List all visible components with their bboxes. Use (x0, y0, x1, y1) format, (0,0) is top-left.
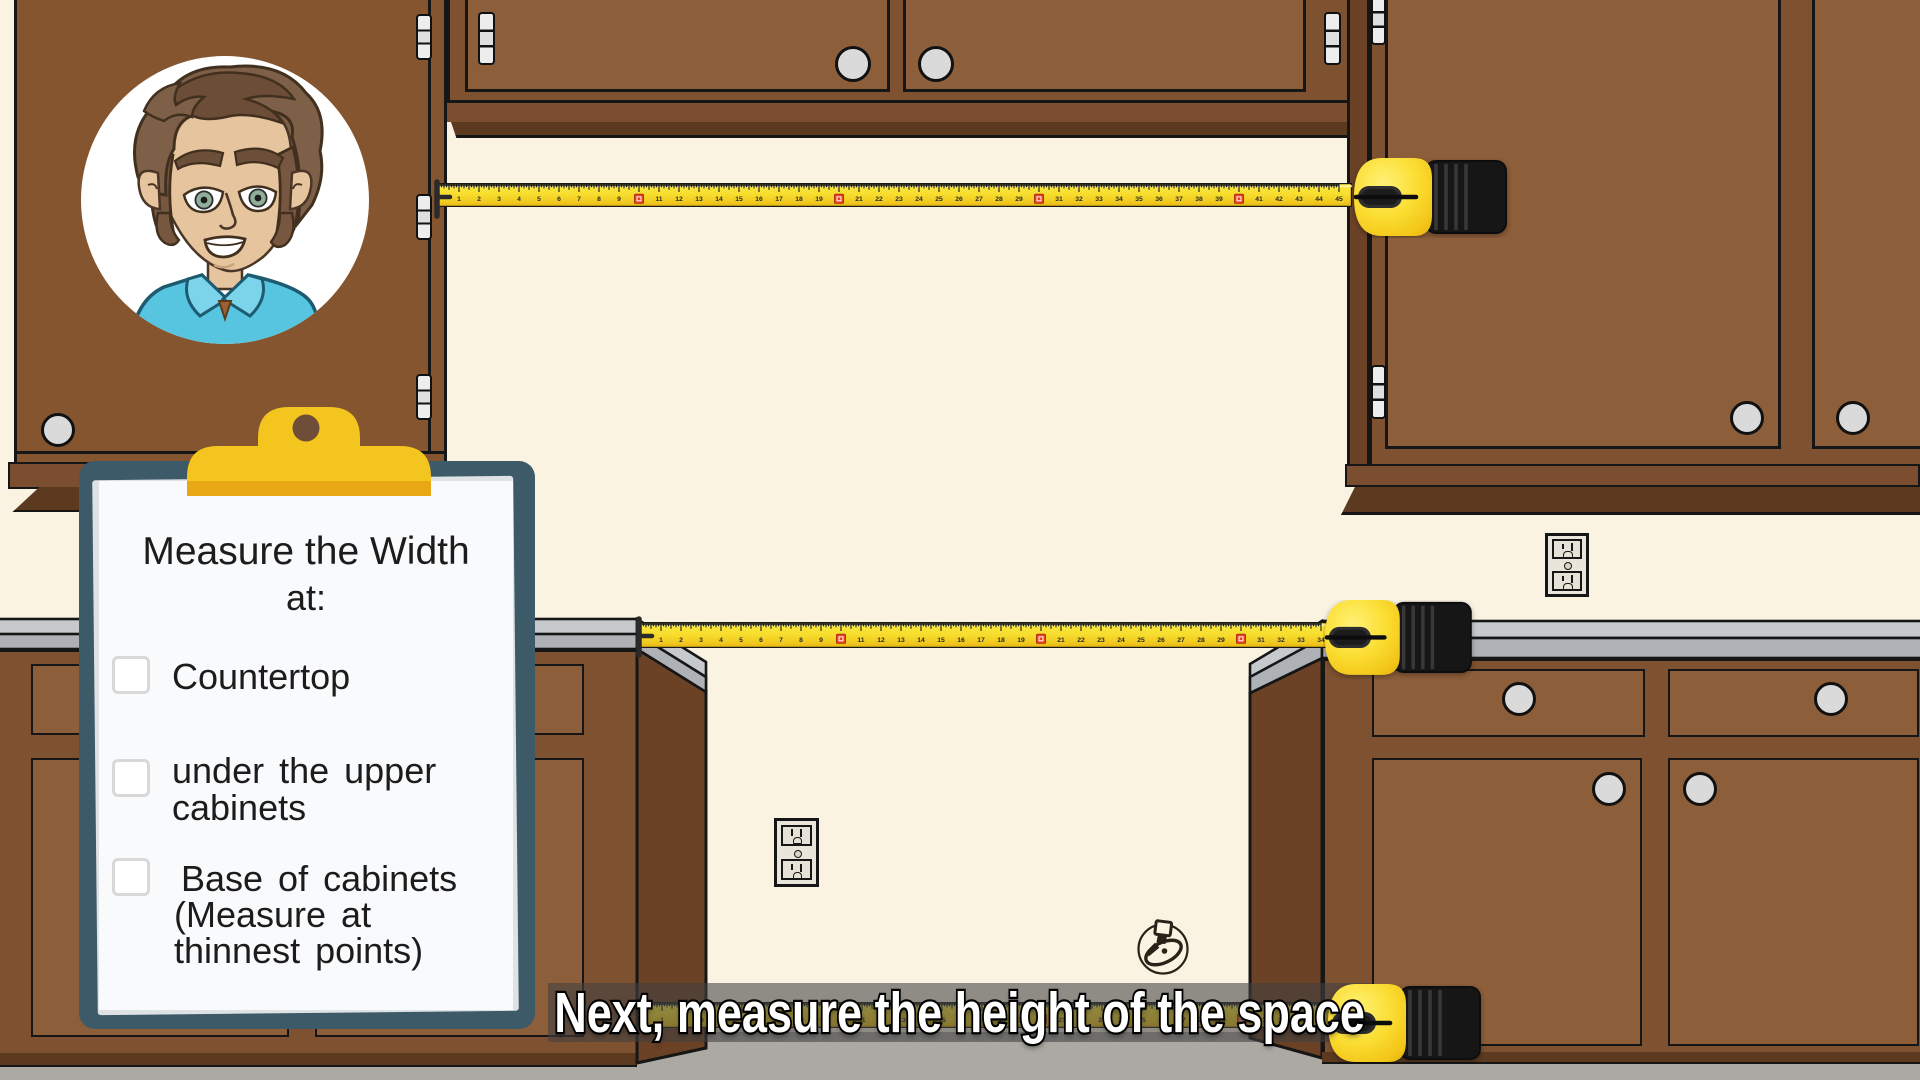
svg-text:18: 18 (795, 196, 803, 203)
svg-text:45: 45 (1335, 196, 1343, 203)
svg-text:14: 14 (715, 196, 723, 203)
svg-text:36: 36 (1155, 196, 1163, 203)
svg-text:8: 8 (597, 196, 601, 203)
svg-text:4: 4 (719, 637, 723, 644)
svg-text:11: 11 (857, 637, 864, 644)
svg-text:43: 43 (1295, 196, 1303, 203)
svg-text:8: 8 (799, 637, 803, 644)
svg-text:31: 31 (1257, 637, 1265, 644)
svg-text:9: 9 (617, 196, 621, 203)
svg-text:13: 13 (897, 637, 905, 644)
svg-text:2: 2 (679, 637, 683, 644)
svg-text:21: 21 (855, 196, 863, 203)
svg-text:41: 41 (1255, 196, 1263, 203)
svg-text:13: 13 (695, 196, 703, 203)
svg-text:24: 24 (1117, 637, 1125, 644)
svg-text:3: 3 (699, 637, 703, 644)
svg-text:28: 28 (995, 196, 1003, 203)
svg-text:42: 42 (1275, 196, 1283, 203)
svg-text:32: 32 (1075, 196, 1083, 203)
svg-text:24: 24 (915, 196, 923, 203)
svg-text:7: 7 (577, 196, 581, 203)
svg-text:19: 19 (1017, 637, 1025, 644)
svg-text:29: 29 (1015, 196, 1023, 203)
svg-text:11: 11 (655, 196, 662, 203)
svg-text:17: 17 (977, 637, 985, 644)
svg-text:25: 25 (1137, 637, 1145, 644)
svg-text:12: 12 (877, 637, 885, 644)
svg-text:26: 26 (955, 196, 963, 203)
svg-text:14: 14 (917, 637, 925, 644)
svg-text:22: 22 (1077, 637, 1085, 644)
svg-text:18: 18 (997, 637, 1005, 644)
svg-text:3: 3 (497, 196, 501, 203)
svg-text:27: 27 (1177, 637, 1185, 644)
svg-text:9: 9 (819, 637, 823, 644)
svg-text:21: 21 (1057, 637, 1065, 644)
svg-text:39: 39 (1215, 196, 1223, 203)
svg-text:37: 37 (1175, 196, 1183, 203)
svg-text:23: 23 (1097, 637, 1105, 644)
svg-text:26: 26 (1157, 637, 1165, 644)
svg-text:22: 22 (875, 196, 883, 203)
svg-text:19: 19 (815, 196, 823, 203)
svg-text:16: 16 (957, 637, 965, 644)
svg-text:15: 15 (937, 637, 945, 644)
svg-text:17: 17 (775, 196, 783, 203)
svg-text:5: 5 (537, 196, 541, 203)
svg-text:33: 33 (1095, 196, 1103, 203)
svg-text:6: 6 (759, 637, 763, 644)
svg-text:7: 7 (779, 637, 783, 644)
svg-text:16: 16 (755, 196, 763, 203)
svg-text:33: 33 (1297, 637, 1305, 644)
svg-text:6: 6 (557, 196, 561, 203)
svg-text:35: 35 (1135, 196, 1143, 203)
svg-text:44: 44 (1315, 196, 1323, 203)
svg-text:5: 5 (739, 637, 743, 644)
svg-text:32: 32 (1277, 637, 1285, 644)
svg-text:4: 4 (517, 196, 521, 203)
svg-text:2: 2 (477, 196, 481, 203)
svg-text:27: 27 (975, 196, 983, 203)
svg-text:15: 15 (735, 196, 743, 203)
svg-text:23: 23 (895, 196, 903, 203)
svg-text:29: 29 (1217, 637, 1225, 644)
svg-text:12: 12 (675, 196, 683, 203)
svg-text:25: 25 (935, 196, 943, 203)
svg-text:38: 38 (1195, 196, 1203, 203)
svg-text:31: 31 (1055, 196, 1063, 203)
svg-text:34: 34 (1115, 196, 1123, 203)
svg-text:28: 28 (1197, 637, 1205, 644)
